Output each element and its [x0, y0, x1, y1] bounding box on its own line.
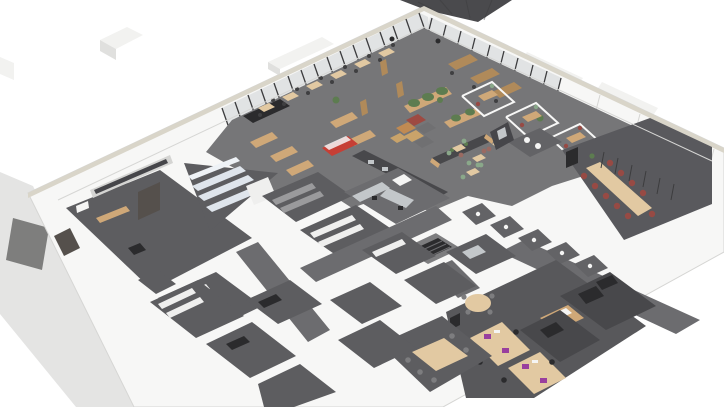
- round-mirror: [535, 143, 541, 149]
- potted-plant: [333, 97, 340, 104]
- round-mirror: [524, 137, 530, 143]
- pendant-lamp: [436, 39, 441, 44]
- round-table: [465, 294, 491, 312]
- floorplan-svg: [0, 0, 724, 407]
- potted-plant: [437, 97, 443, 103]
- floorplan-render: [0, 0, 724, 407]
